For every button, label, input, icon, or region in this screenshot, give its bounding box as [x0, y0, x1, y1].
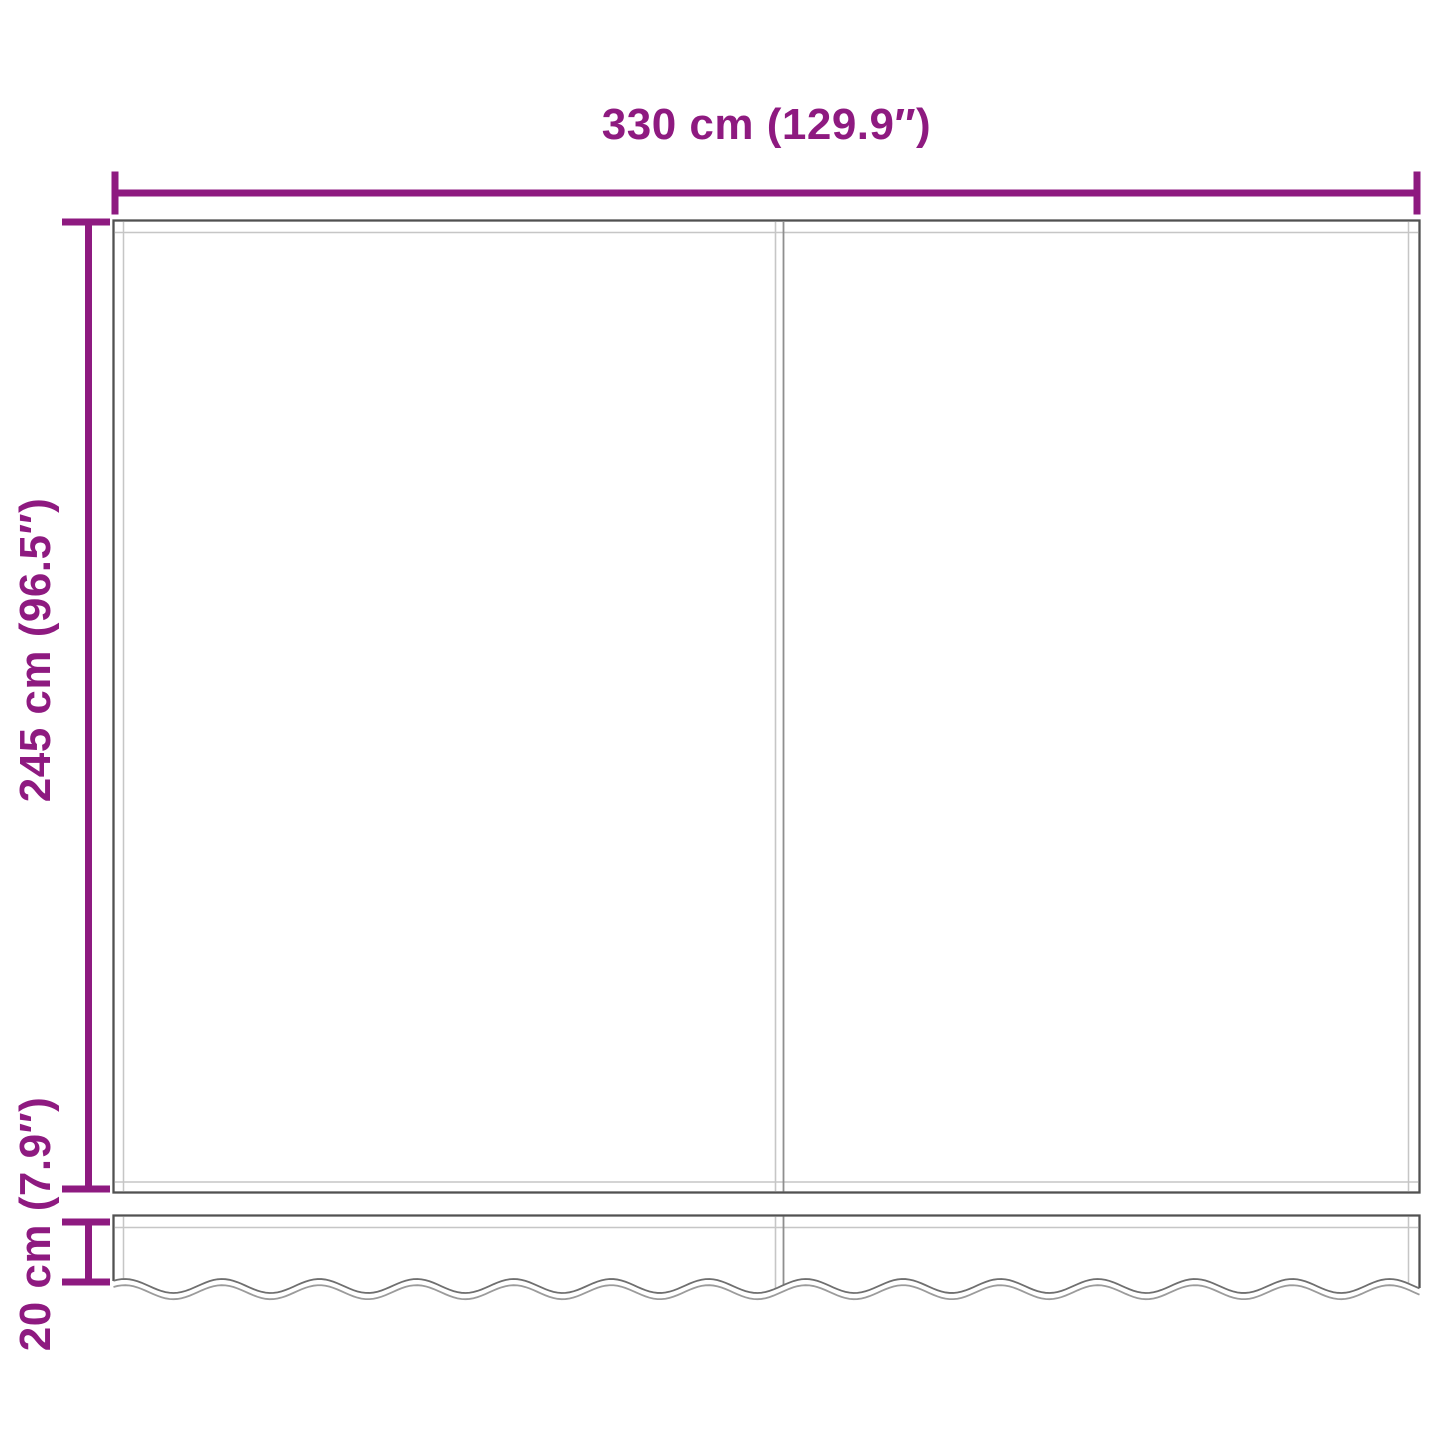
valance: [114, 1216, 1420, 1300]
fabric-outline: [114, 221, 1420, 1193]
fabric-seam-lines: [115, 222, 1418, 1191]
valance-dimension-cap-bottom: [62, 1279, 110, 1286]
valance-dimension-cap-top: [62, 1219, 110, 1226]
width-dimension-cap-right: [1414, 172, 1421, 215]
height-dimension-cap-top: [62, 219, 110, 226]
height-dimension-line: [85, 220, 92, 1190]
valance-seam-lines: [115, 1217, 1418, 1285]
width-dimension-cap-left: [112, 172, 119, 215]
width-dimension: [112, 172, 1421, 215]
width-dimension-line: [113, 190, 1420, 197]
fabric-panel: [114, 221, 1420, 1193]
awning-drawing: [0, 0, 1445, 1445]
height-dimension: [62, 219, 110, 1193]
diagram-canvas: 330 cm (129.9″) 245 cm (96.5″) 20 cm (7.…: [0, 0, 1445, 1445]
height-dimension-cap-bottom: [62, 1186, 110, 1193]
valance-dimension-line: [85, 1222, 92, 1282]
valance-dimension: [62, 1219, 110, 1286]
valance-outline: [114, 1216, 1420, 1289]
